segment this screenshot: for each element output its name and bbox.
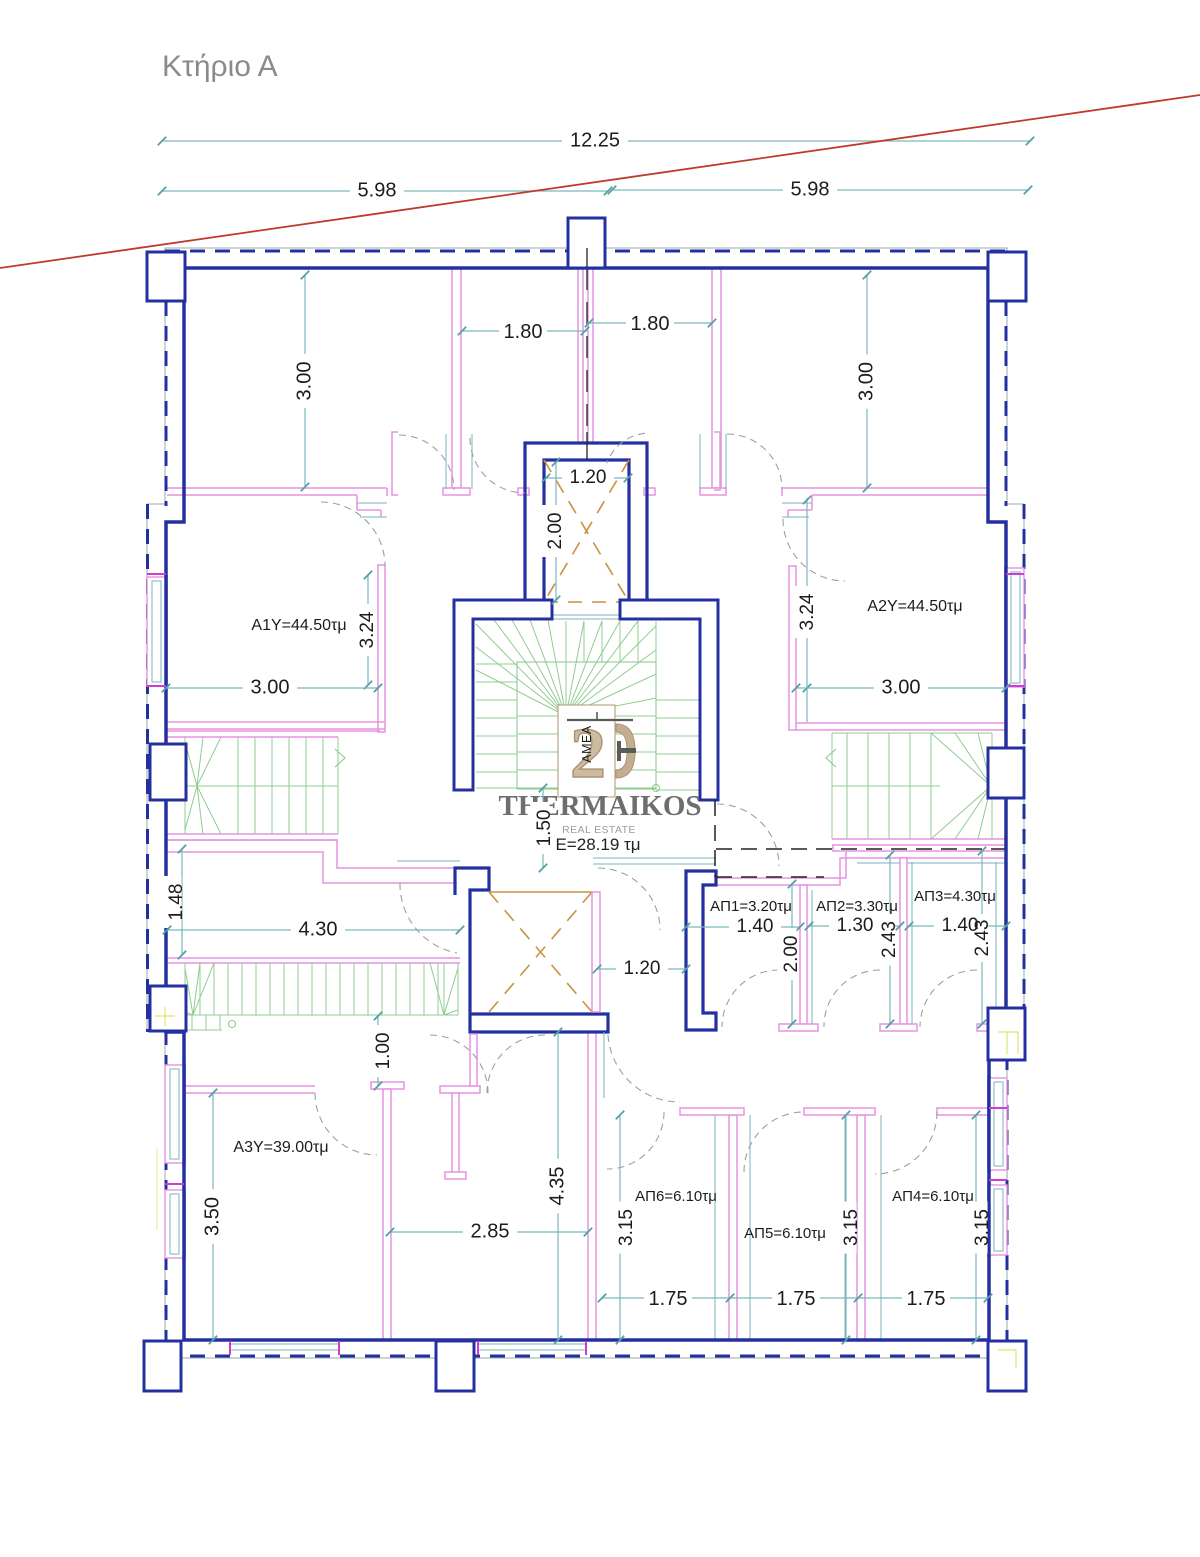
svg-text:5.98: 5.98 [791,178,830,200]
svg-text:5.98: 5.98 [358,179,397,201]
svg-text:2.00: 2.00 [545,513,566,550]
svg-text:THERMAIKOS: THERMAIKOS [498,790,701,822]
svg-text:12.25: 12.25 [570,129,620,151]
svg-text:3.24: 3.24 [797,593,818,630]
svg-text:ΑΠ6=6.10τμ: ΑΠ6=6.10τμ [635,1188,717,1205]
svg-text:2.43: 2.43 [879,921,900,958]
svg-text:1.75: 1.75 [649,1288,688,1310]
svg-text:1.80: 1.80 [504,321,543,343]
svg-text:ΑΠ2=3.30τμ: ΑΠ2=3.30τμ [816,898,898,915]
svg-text:1.50: 1.50 [534,810,555,847]
svg-text:3.00: 3.00 [293,362,315,401]
svg-text:2.00: 2.00 [781,936,802,973]
svg-text:A2Y=44.50τμ: A2Y=44.50τμ [867,598,962,615]
svg-text:3.15: 3.15 [972,1209,993,1246]
svg-text:ΑΠ3=4.30τμ: ΑΠ3=4.30τμ [914,888,996,905]
svg-text:1.20: 1.20 [570,467,607,488]
svg-text:1.80: 1.80 [631,313,670,335]
svg-text:4.30: 4.30 [299,918,338,940]
svg-text:3.24: 3.24 [357,611,378,648]
svg-text:ΑΠ1=3.20τμ: ΑΠ1=3.20τμ [710,898,792,915]
svg-text:1.40: 1.40 [737,916,774,937]
svg-text:ΑΠ5=6.10τμ: ΑΠ5=6.10τμ [744,1225,826,1242]
svg-text:3.15: 3.15 [841,1209,862,1246]
svg-text:A1Y=44.50τμ: A1Y=44.50τμ [251,617,346,634]
svg-text:E=28.19 τμ: E=28.19 τμ [555,835,640,854]
svg-text:3.00: 3.00 [882,676,921,698]
svg-text:1.20: 1.20 [624,958,661,979]
svg-text:A3Y=39.00τμ: A3Y=39.00τμ [233,1139,328,1156]
svg-text:1.48: 1.48 [166,884,187,921]
svg-text:2.85: 2.85 [471,1220,510,1242]
svg-text:2.43: 2.43 [972,920,993,957]
svg-text:3.15: 3.15 [616,1209,637,1246]
svg-text:3.50: 3.50 [201,1197,223,1236]
svg-text:3.00: 3.00 [855,362,877,401]
svg-text:1.75: 1.75 [777,1288,816,1310]
svg-text:4.35: 4.35 [546,1167,568,1206]
svg-text:1.75: 1.75 [907,1288,946,1310]
svg-text:3.00: 3.00 [251,676,290,698]
svg-text:Κτήριο Α: Κτήριο Α [162,50,278,83]
svg-text:ΑΠ4=6.10τμ: ΑΠ4=6.10τμ [892,1188,974,1205]
svg-text:1.30: 1.30 [837,915,874,936]
svg-text:AMEA: AMEA [580,725,594,763]
svg-text:1.00: 1.00 [373,1033,394,1070]
